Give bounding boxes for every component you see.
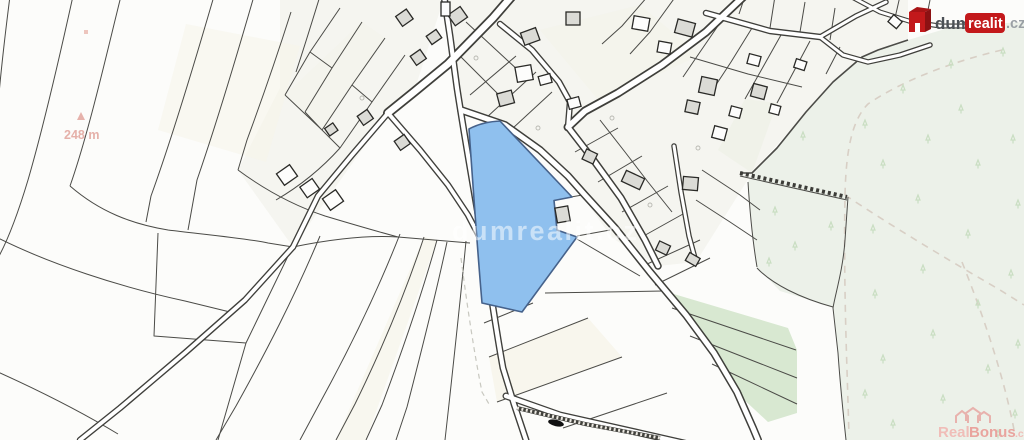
center-watermark: dumrealit.cz (452, 216, 640, 246)
cadastral-map-viewport[interactable]: dumrealit.cz 248 m dum realit .cz Real B… (0, 0, 1024, 440)
scale-text: 248 m (64, 128, 99, 142)
realbonus-text-bonus: Bonus (969, 424, 1016, 440)
cadastral-map[interactable]: dumrealit.cz 248 m dum realit .cz Real B… (0, 0, 1024, 440)
logo-text-cz: .cz (1006, 16, 1024, 32)
realbonus-text-real: Real (938, 424, 970, 440)
dumrealit-logo-icon (909, 7, 931, 32)
logo-text-realit: realit (968, 16, 1003, 32)
realbonus-text-cz: .cz (1015, 428, 1024, 440)
